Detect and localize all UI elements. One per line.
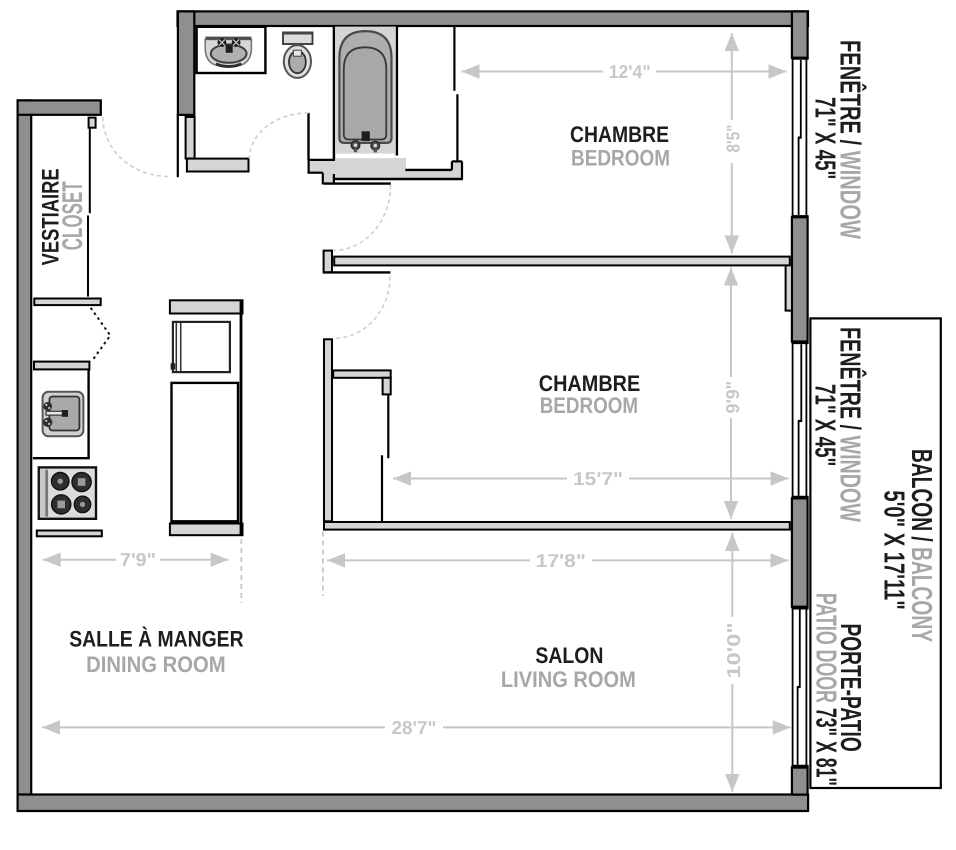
- svg-text:17'8": 17'8": [536, 550, 586, 571]
- svg-text:LIVING ROOM: LIVING ROOM: [501, 667, 636, 692]
- svg-text:CLOSET: CLOSET: [57, 181, 89, 250]
- svg-text:10'0": 10'0": [723, 623, 744, 679]
- svg-text:71" X 45": 71" X 45": [808, 384, 840, 467]
- svg-text:71" X 45": 71" X 45": [808, 97, 840, 180]
- svg-text:DINING ROOM: DINING ROOM: [86, 652, 226, 677]
- svg-text:CHAMBRE: CHAMBRE: [570, 122, 669, 147]
- svg-text:28'7": 28'7": [392, 717, 437, 738]
- svg-text:5'0" X 17'11": 5'0" X 17'11": [877, 490, 909, 609]
- svg-text:8'5": 8'5": [723, 125, 744, 153]
- svg-text:BEDROOM: BEDROOM: [540, 393, 638, 418]
- svg-text:12'4": 12'4": [609, 61, 651, 82]
- svg-text:SALLE À MANGER: SALLE À MANGER: [69, 626, 243, 652]
- svg-text:BEDROOM: BEDROOM: [571, 146, 670, 171]
- svg-text:PATIO DOOR 73" X 81": PATIO DOOR 73" X 81": [810, 593, 842, 786]
- svg-text:15'7": 15'7": [573, 468, 623, 489]
- svg-text:7'9": 7'9": [120, 549, 156, 570]
- svg-text:SALON: SALON: [535, 643, 603, 668]
- svg-text:9'9": 9'9": [722, 381, 743, 414]
